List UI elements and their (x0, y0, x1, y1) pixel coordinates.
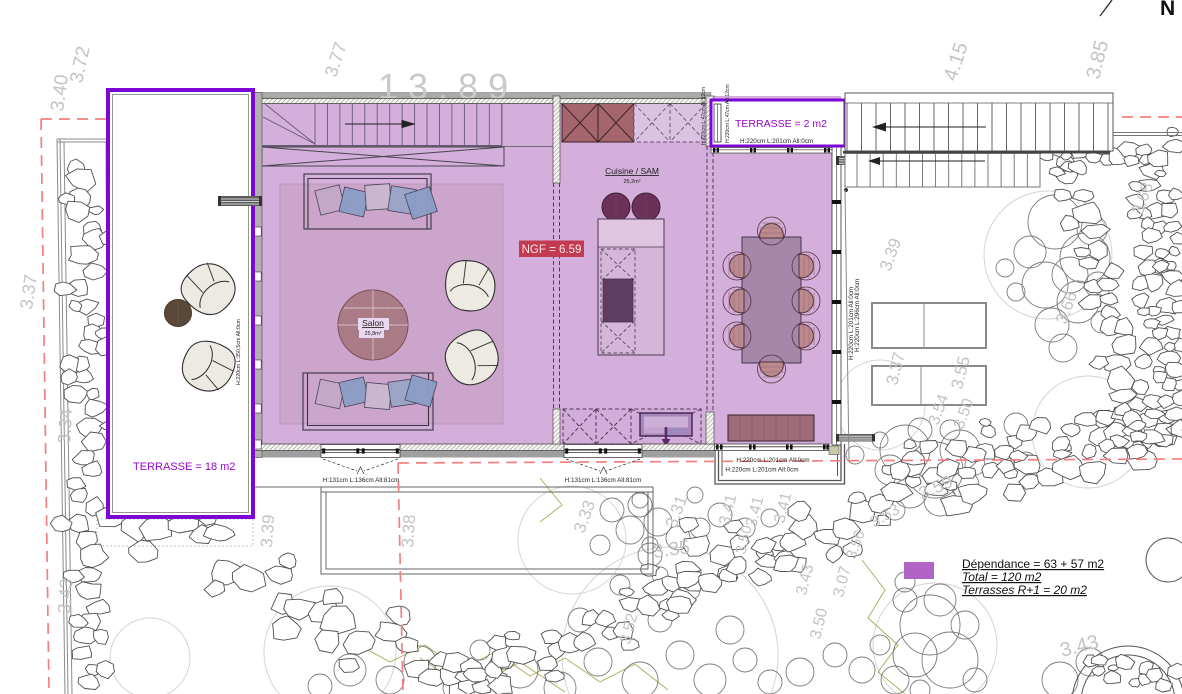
svg-text:NGF = 6.59: NGF = 6.59 (522, 244, 582, 256)
svg-text:N: N (1160, 0, 1175, 20)
svg-text:H:131cm L:136cm All:81cm: H:131cm L:136cm All:81cm (565, 477, 642, 484)
svg-text:25,8m²: 25,8m² (364, 331, 381, 337)
svg-text:Total = 120 m2: Total = 120 m2 (962, 570, 1042, 584)
svg-text:Dépendance = 63 + 57 m2: Dépendance = 63 + 57 m2 (962, 557, 1104, 571)
svg-text:EVIER: EVIER (665, 429, 684, 436)
svg-text:H:220cm L:201cm All:0cm: H:220cm L:201cm All:0cm (736, 457, 809, 464)
svg-text:3.38: 3.38 (398, 514, 419, 548)
svg-text:H:220cm L:47cm A8:12cm: H:220cm L:47cm A8:12cm (725, 84, 731, 143)
svg-text:H:220cm L:296cm All:0cm: H:220cm L:296cm All:0cm (854, 279, 861, 352)
svg-text:3.43: 3.43 (54, 578, 76, 614)
svg-text:TERRASSE = 18 m2: TERRASSE = 18 m2 (133, 461, 235, 473)
svg-text:25,2m²: 25,2m² (623, 179, 640, 185)
svg-text:H:220cm L:350,5cm All:0cm: H:220cm L:350,5cm All:0cm (236, 318, 242, 385)
svg-text:TERRASSE = 2 m2: TERRASSE = 2 m2 (735, 118, 827, 130)
svg-text:H:220cm L:201cm All:0cm: H:220cm L:201cm All:0cm (740, 138, 813, 145)
svg-text:Cuisine / SAM: Cuisine / SAM (605, 166, 659, 176)
svg-text:3.34: 3.34 (54, 408, 76, 444)
svg-text:Salon: Salon (362, 318, 384, 328)
svg-text:Terrasses R+1 = 20 m2: Terrasses R+1 = 20 m2 (962, 583, 1087, 597)
svg-text:H:131cm L:136cm All:81cm: H:131cm L:136cm All:81cm (323, 477, 400, 484)
svg-text:H:220cm L:47cm All:12cm: H:220cm L:47cm All:12cm (701, 87, 707, 145)
svg-text:3.39: 3.39 (257, 514, 278, 548)
svg-text:H:220cm L:201cm All:0cm: H:220cm L:201cm All:0cm (725, 467, 798, 474)
